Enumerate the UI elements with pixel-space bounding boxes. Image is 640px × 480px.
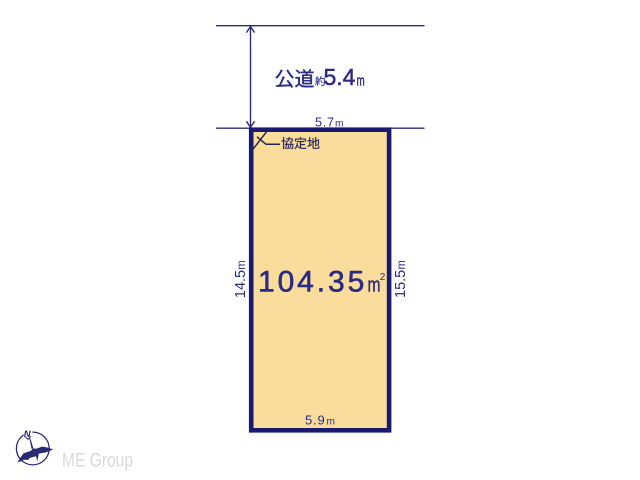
svg-text:15.5: 15.5 [393,270,409,298]
svg-text:ME Group: ME Group [62,451,133,472]
svg-text:5.4: 5.4 [324,64,356,90]
svg-text:m: m [327,416,336,428]
svg-text:m: m [394,260,408,269]
svg-text:2: 2 [380,272,386,283]
svg-text:N: N [24,429,32,440]
svg-text:m: m [357,73,365,89]
svg-text:104.35: 104.35 [258,266,367,299]
svg-text:m: m [234,260,248,269]
svg-text:m: m [368,275,381,297]
svg-text:5.9: 5.9 [305,413,325,428]
svg-text:14.5: 14.5 [233,270,249,298]
